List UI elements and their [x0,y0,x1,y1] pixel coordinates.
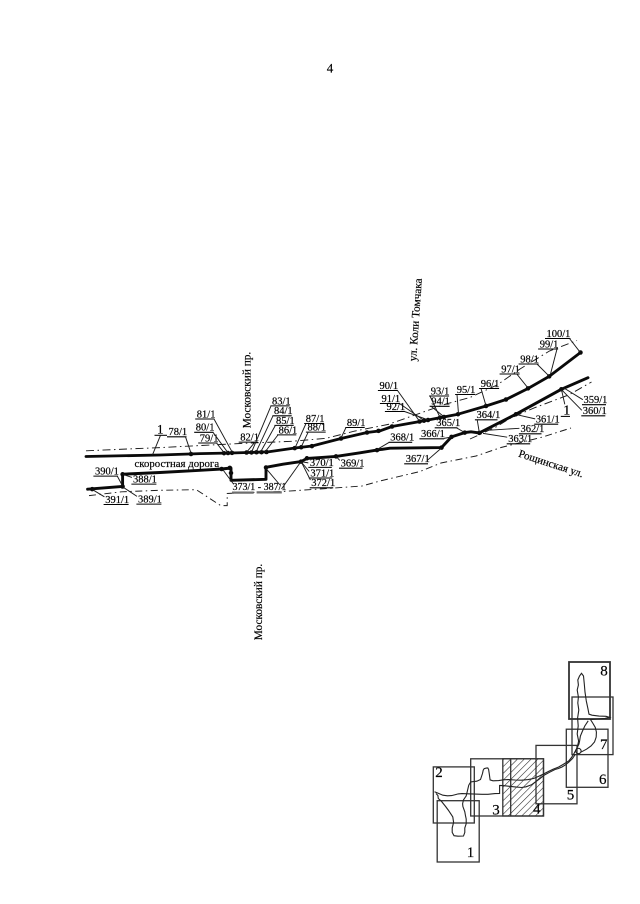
svg-text:1: 1 [467,845,475,861]
svg-text:1: 1 [157,422,164,437]
svg-text:6: 6 [599,772,607,788]
svg-text:5: 5 [567,787,575,803]
svg-text:3: 3 [492,803,500,819]
svg-text:2: 2 [435,765,443,781]
svg-text:4: 4 [327,60,334,75]
svg-text:Московский пр.: Московский пр. [242,352,254,429]
svg-text:Московский пр.: Московский пр. [253,564,265,641]
svg-text:7: 7 [600,737,608,753]
svg-text:8: 8 [600,663,608,679]
svg-text:4: 4 [533,801,541,817]
svg-text:скоростная дорога: скоростная дорога [135,458,220,470]
